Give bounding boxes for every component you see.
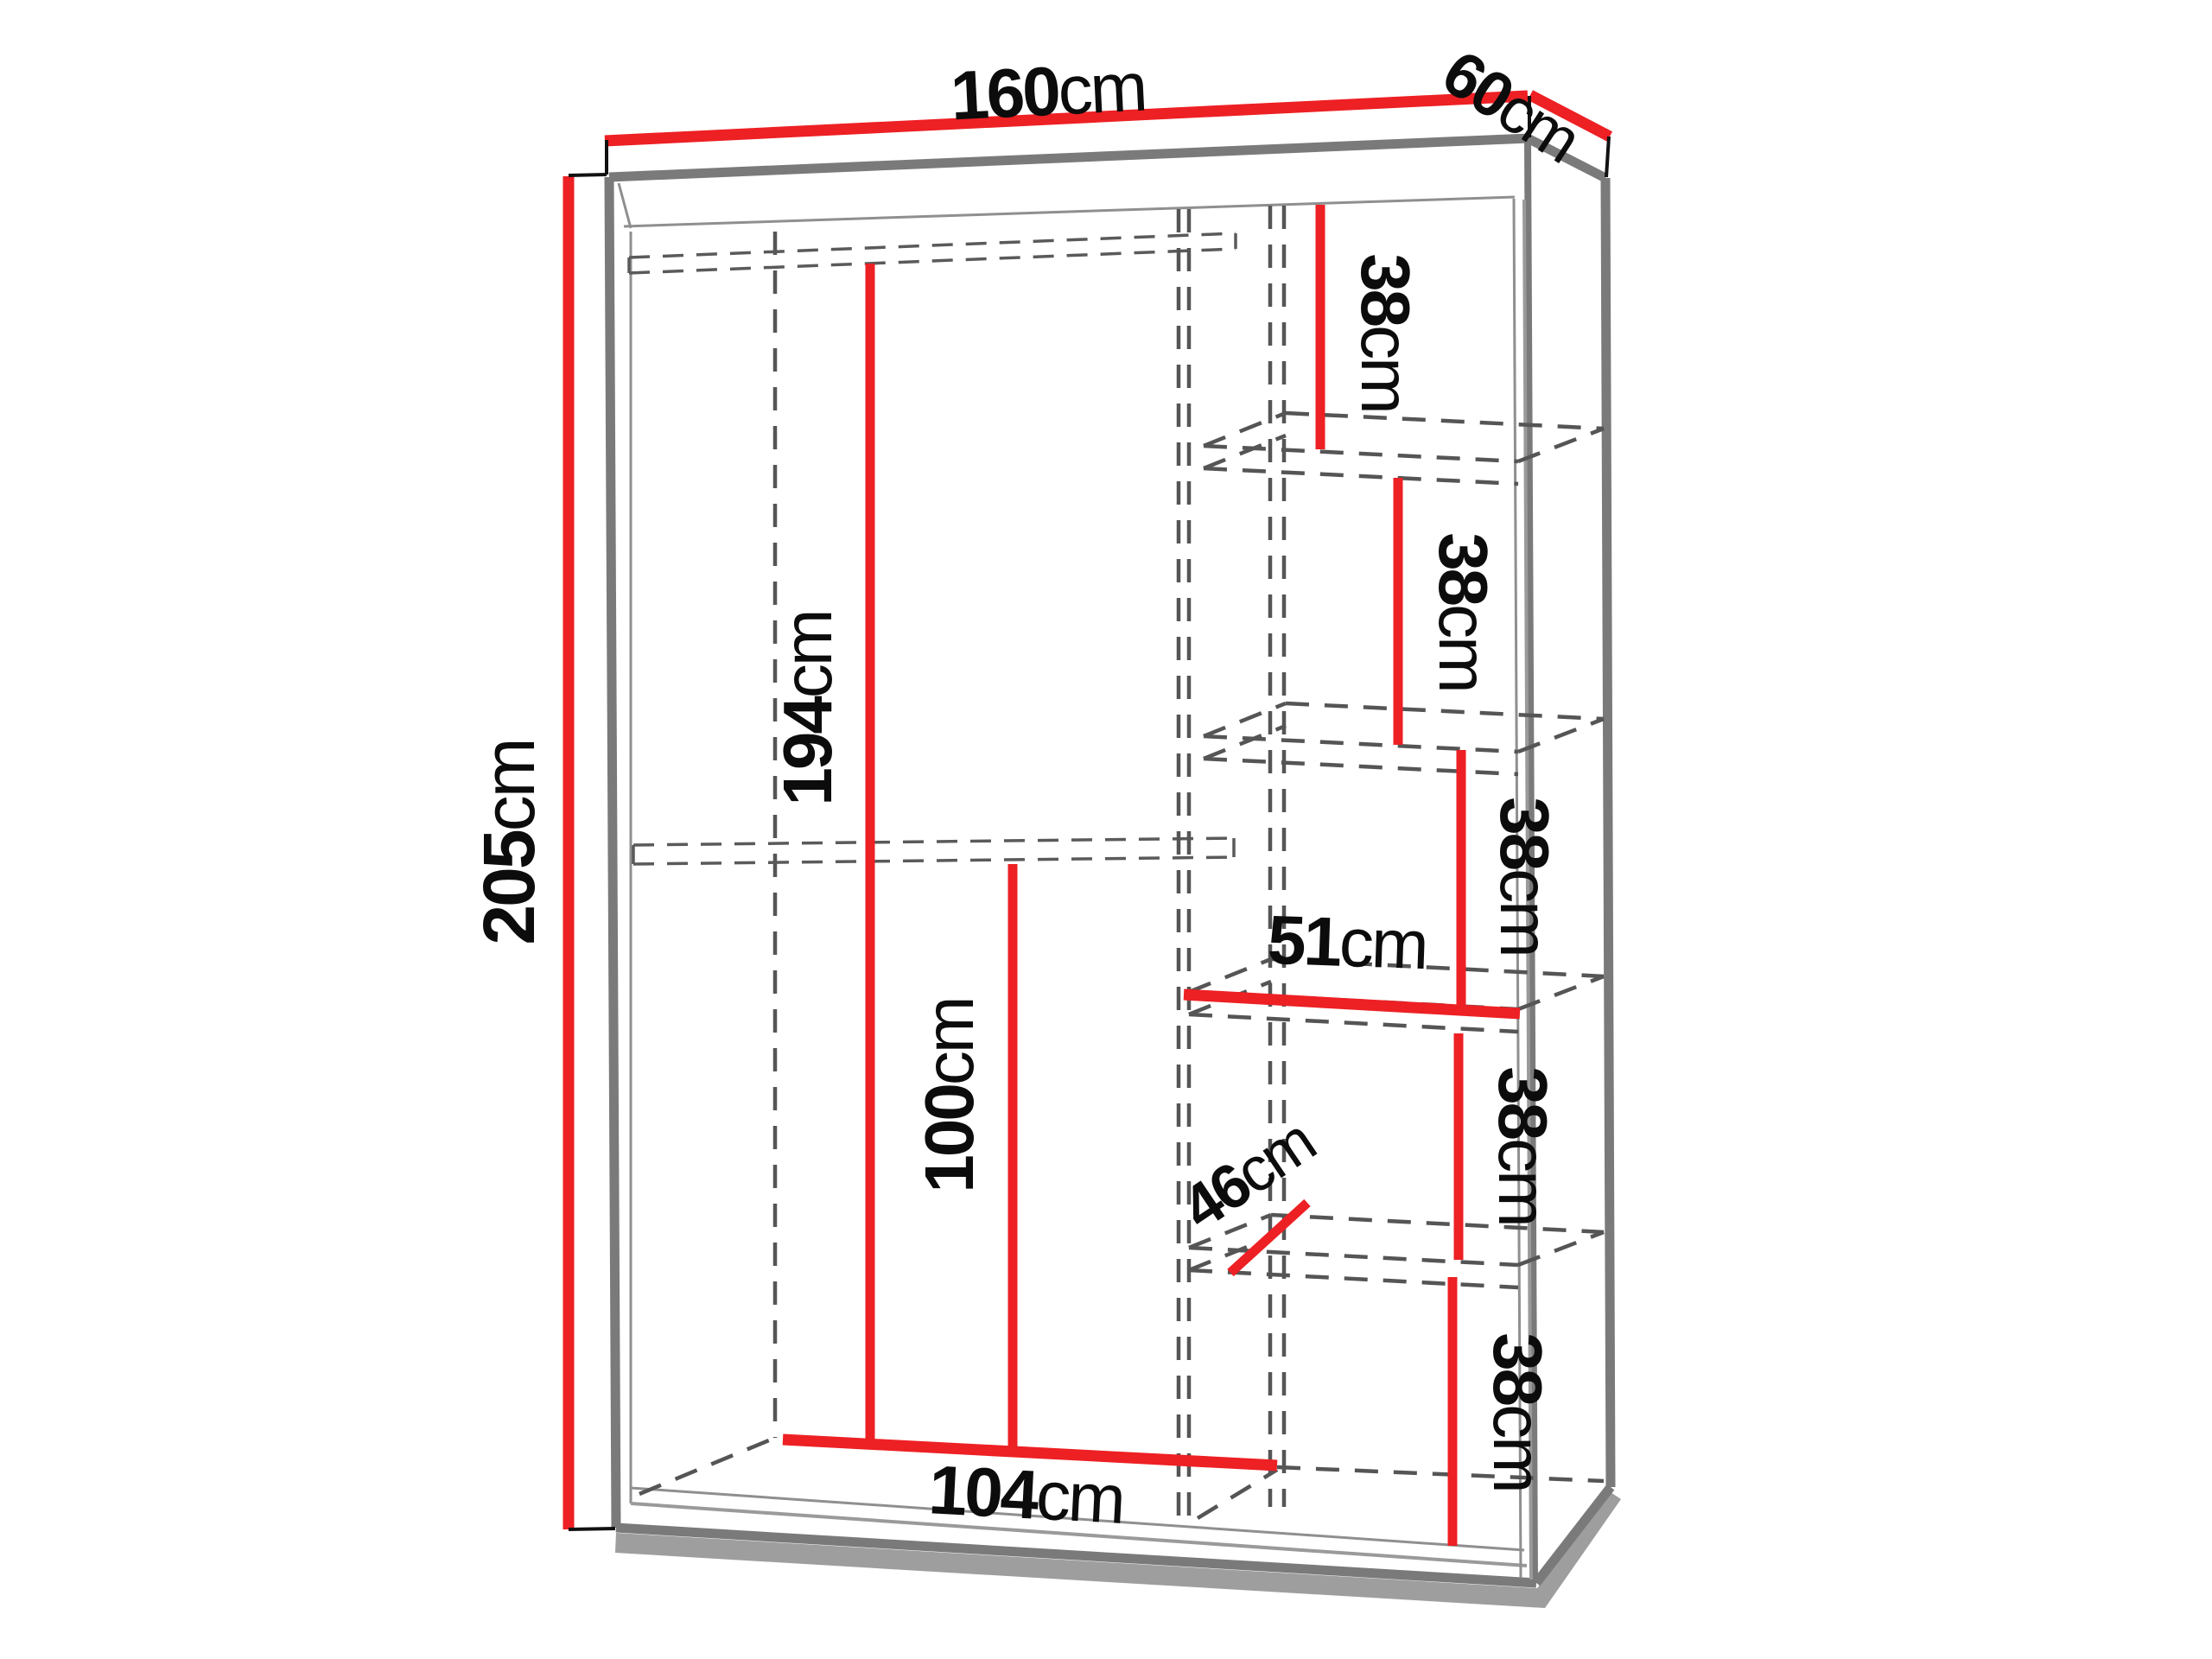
dim-label-height: 205cm <box>468 740 550 944</box>
wardrobe-body <box>605 96 1621 1608</box>
dim-label-hanging-height: 194cm <box>769 611 846 805</box>
wardrobe-dimension-diagram: 160cm 60cm 205cm 194cm 100cm 104cm 51cm … <box>0 0 2212 1659</box>
tick-height-top-h <box>569 175 607 175</box>
dim-label-shelf-gap-2: 38cm <box>1425 532 1502 691</box>
side-right-edge <box>1605 178 1611 1487</box>
dim-label-lower-height: 100cm <box>911 998 988 1192</box>
dim-label-interior-width: 104cm <box>927 1451 1125 1538</box>
dim-label-shelf-gap-3: 38cm <box>1486 797 1563 956</box>
tick-height-bottom <box>569 1529 615 1529</box>
dim-label-shelf-width: 51cm <box>1267 901 1428 983</box>
dim-label-shelf-gap-4: 38cm <box>1484 1066 1561 1225</box>
dim-label-width: 160cm <box>949 48 1147 135</box>
dim-label-shelf-gap-1: 38cm <box>1347 253 1424 412</box>
tick-depth-right <box>1606 137 1609 177</box>
dim-label-shelf-gap-5: 38cm <box>1479 1332 1556 1491</box>
